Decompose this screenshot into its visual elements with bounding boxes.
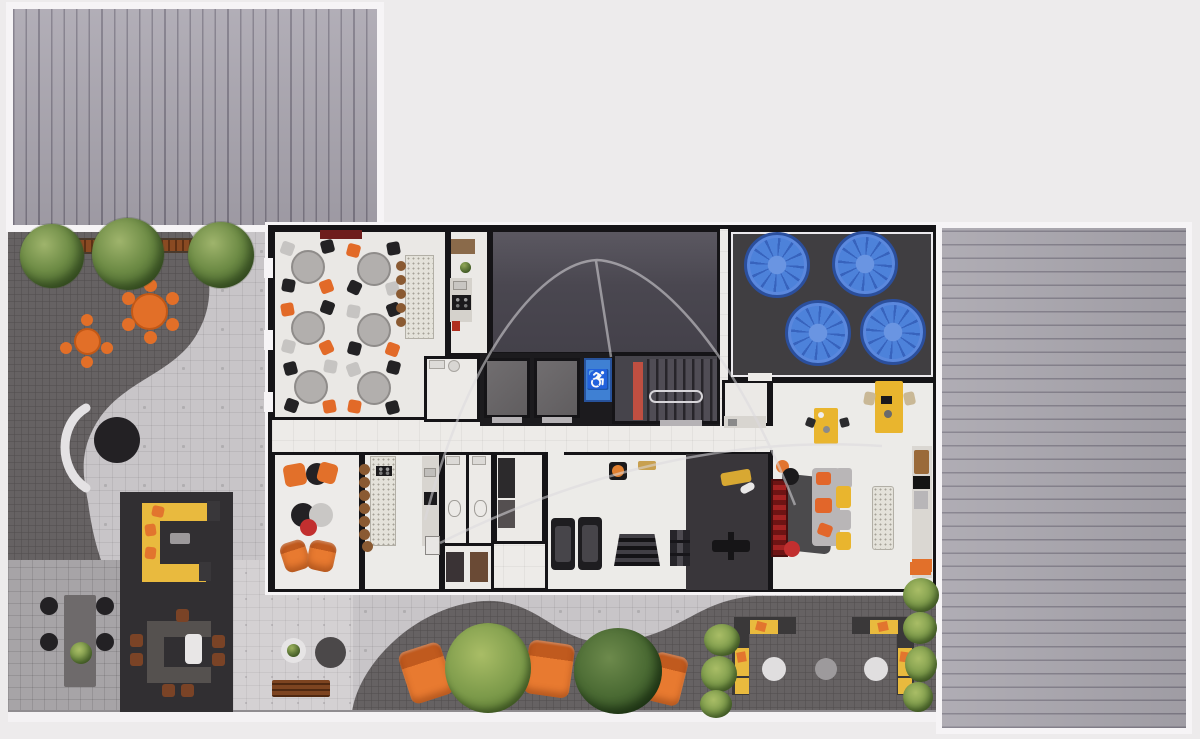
bush-large [445, 623, 531, 713]
cafe-table-orange [131, 293, 168, 330]
wc-boiler [448, 360, 460, 372]
grill [185, 634, 202, 664]
locker-dark [498, 458, 515, 498]
lounge-door [766, 426, 774, 450]
buffet-stool [396, 289, 406, 299]
chair [346, 304, 361, 319]
kitchen-cabinet [451, 239, 475, 254]
water-tank [860, 299, 926, 365]
tree [92, 218, 164, 290]
cushion-orange [815, 498, 832, 513]
round-seat-dark [315, 637, 346, 668]
chair-tan [903, 391, 916, 406]
buffet-stool [396, 317, 406, 327]
bath-sink [446, 456, 460, 465]
stairwell [612, 353, 720, 424]
elevator-threshold [492, 417, 522, 423]
stool-black [40, 597, 58, 615]
buffet-counter [405, 255, 434, 339]
pouf-black [782, 468, 799, 485]
stair-rail [649, 390, 703, 403]
kitchen-plant [460, 262, 471, 273]
bbq-stool [130, 653, 143, 666]
dining-table [357, 313, 391, 347]
bar-stool [359, 529, 370, 540]
bush [903, 682, 933, 712]
entry-mat-red [320, 230, 362, 239]
pouf-gray [836, 510, 851, 530]
wood-step [638, 461, 656, 470]
bush [700, 690, 732, 718]
bar-stool [359, 490, 370, 501]
bush [903, 612, 937, 644]
cafe-stool [81, 314, 93, 326]
black-box [913, 476, 930, 489]
sofa-gray [836, 468, 852, 488]
locker-gray [498, 500, 515, 528]
coffee-table [170, 533, 190, 544]
elevator-1 [484, 358, 530, 418]
elevator-2 [534, 358, 580, 418]
bush [701, 656, 737, 692]
bbq-stool [162, 684, 175, 697]
stair-red-strip [633, 362, 643, 420]
cafe-stool [122, 292, 135, 305]
bbq-stool [176, 609, 189, 622]
chair [281, 278, 296, 293]
water-tank [744, 232, 810, 298]
bench-white [872, 486, 894, 550]
treadmill-belt [582, 525, 598, 562]
tabletop-item [884, 410, 892, 418]
mat-orange [910, 562, 931, 575]
pillow-orange [144, 546, 156, 559]
bush [905, 646, 937, 682]
table-plant [287, 644, 300, 657]
side-table-white [762, 657, 786, 681]
water-tank [832, 231, 898, 297]
pouf-red [300, 519, 317, 536]
cafe-stool [60, 342, 72, 354]
toilet [448, 500, 461, 517]
accessible-lift: ♿ [584, 358, 612, 402]
floor-plan-rendering: ♿ [0, 0, 1200, 739]
sofa-armrest [207, 501, 220, 521]
bbq-stool [212, 653, 225, 666]
laptop [881, 396, 892, 404]
cabinet-brown [914, 450, 929, 474]
core-void [490, 229, 720, 355]
chair-tan [863, 391, 876, 406]
bath-sink [472, 456, 486, 465]
buffet-stool [396, 275, 406, 285]
table-plant [70, 642, 92, 664]
bathroom-back-wall [444, 543, 492, 546]
party-terrace-door [264, 392, 273, 412]
dining-table [294, 370, 328, 404]
dining-table [291, 250, 325, 284]
yellow-sofa-seg [142, 564, 206, 582]
gray-box [914, 491, 928, 509]
dumbbell-rack [614, 534, 660, 566]
pillow-orange [736, 651, 747, 662]
elevator-threshold [542, 417, 572, 423]
shelf-wood [470, 552, 488, 582]
water-tank [785, 300, 851, 366]
bbq-counter [147, 667, 211, 683]
armchair-orange [282, 462, 307, 487]
stool-black [96, 633, 114, 651]
cafe-stool [81, 356, 93, 368]
pillow-orange [144, 523, 157, 536]
pouf-red [784, 541, 800, 557]
yellow-sofa-seg [735, 678, 749, 694]
barbell-stand [670, 530, 690, 566]
chair [347, 399, 362, 414]
tank-room-door [748, 373, 772, 381]
fire-pit [94, 417, 140, 463]
bbq-stool [181, 684, 194, 697]
tree-dark [574, 628, 662, 714]
stool-black [96, 597, 114, 615]
cafe-stool [144, 331, 157, 344]
pouf-yellow [836, 532, 851, 550]
cafe-stool [101, 342, 113, 354]
cafe-stool [166, 318, 179, 331]
pantry-item [728, 419, 737, 426]
party-terrace-door [264, 258, 273, 278]
cafe-stool [122, 318, 135, 331]
bar-appliance [424, 492, 437, 505]
sofa-armrest [199, 562, 211, 581]
bbq-stool [130, 634, 143, 647]
tree [20, 224, 84, 288]
chair [322, 399, 337, 414]
kitchen-sink [453, 281, 467, 290]
bush [903, 578, 939, 612]
red-appliance [452, 321, 460, 331]
bathroom-divider-wall [466, 455, 469, 545]
wc-sink [429, 360, 445, 369]
bar-stool [359, 503, 370, 514]
dining-table [291, 311, 325, 345]
exercise-ball [612, 465, 624, 477]
toilet [474, 500, 487, 517]
wood-bench [272, 680, 330, 697]
treadmill-belt [555, 526, 571, 562]
stove [452, 295, 471, 310]
side-table-white [864, 657, 888, 681]
cafe-table-orange [74, 328, 101, 355]
party-terrace-door [264, 330, 273, 350]
gym-door [548, 450, 564, 456]
buffet-stool [396, 261, 406, 271]
weight-bench-bar [728, 532, 734, 560]
pouf-yellow [836, 486, 851, 508]
cooktop [376, 466, 392, 476]
bar-stool [359, 464, 370, 475]
chair [386, 241, 401, 256]
long-table [64, 595, 96, 687]
shelf-dark [446, 552, 464, 582]
dining-table [357, 371, 391, 405]
side-table-gray [815, 658, 837, 680]
fridge [425, 536, 440, 555]
stair-threshold [660, 420, 702, 426]
dining-table [357, 252, 391, 286]
desk-yellow [875, 381, 903, 433]
wheelchair-icon: ♿ [586, 371, 610, 390]
bar-stool [359, 477, 370, 488]
chair [280, 302, 295, 317]
bar-stool [359, 516, 370, 527]
tabletop-item [823, 426, 830, 433]
tree [188, 222, 254, 288]
bar-sink [424, 468, 436, 477]
bar-stool [362, 541, 373, 552]
stool-black [40, 633, 58, 651]
buffet-stool [396, 303, 406, 313]
bush [704, 624, 740, 656]
bbq-stool [212, 635, 225, 648]
cafe-stool [166, 292, 179, 305]
pillow-orange [151, 505, 165, 518]
tabletop-item [818, 412, 824, 418]
chair [323, 359, 338, 374]
cushion-orange [816, 472, 831, 485]
